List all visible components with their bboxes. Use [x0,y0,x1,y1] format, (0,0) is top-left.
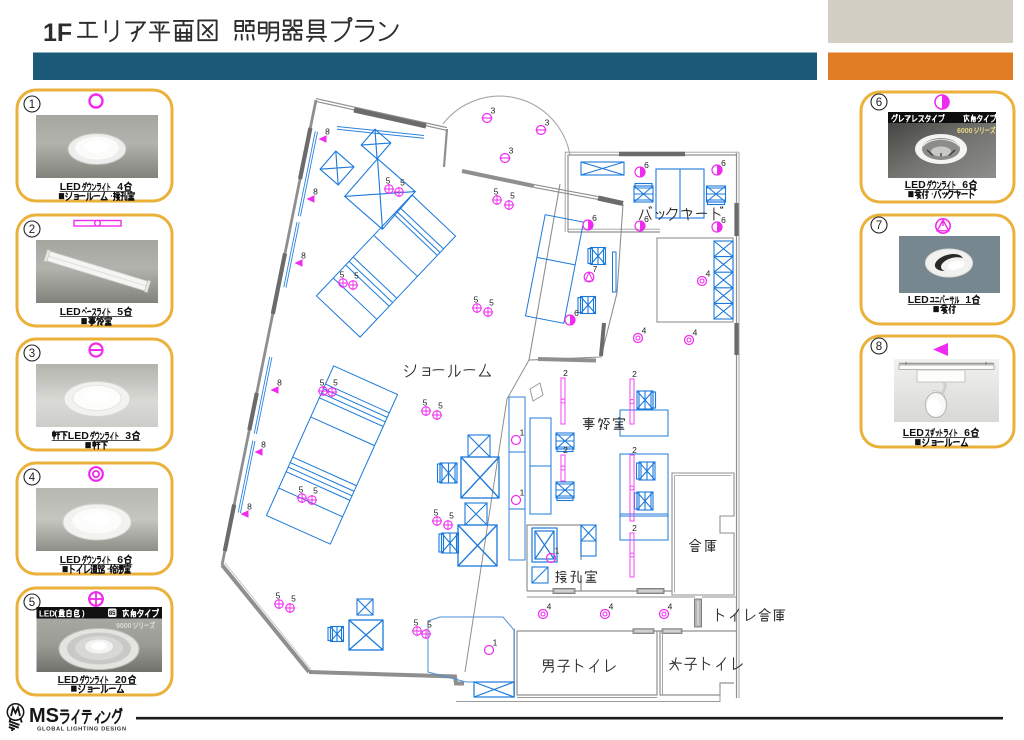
svg-text:8: 8 [313,187,318,197]
svg-text:5: 5 [449,511,454,521]
svg-text:3: 3 [491,106,496,116]
svg-text:): ) [82,609,85,618]
svg-text:6: 6 [592,213,597,223]
svg-text:8: 8 [876,341,882,353]
svg-text:6000: 6000 [957,128,973,135]
svg-text:4: 4 [642,326,647,336]
svg-text:8: 8 [247,502,252,512]
svg-text:5: 5 [489,298,494,308]
svg-text:1: 1 [520,428,525,438]
svg-text:5: 5 [354,271,359,281]
svg-text:2: 2 [632,523,637,533]
svg-text:5: 5 [320,378,325,388]
svg-text:5: 5 [299,485,304,495]
svg-text:6: 6 [644,160,649,170]
svg-text:4: 4 [547,602,552,612]
svg-text:1: 1 [555,546,560,556]
svg-text:5: 5 [438,401,443,411]
svg-text:3: 3 [29,348,35,360]
svg-text:1F: 1F [43,19,72,47]
svg-text:6: 6 [876,97,882,109]
svg-text:2: 2 [632,445,637,455]
svg-text:7: 7 [593,264,598,274]
svg-text:4: 4 [609,602,614,612]
svg-text:LED: LED [39,609,55,618]
svg-text:5: 5 [414,618,419,628]
svg-text:1: 1 [29,99,35,111]
svg-text:6: 6 [721,215,726,225]
svg-text:8: 8 [325,127,330,137]
svg-text:8: 8 [261,440,266,450]
svg-text:MS: MS [29,705,59,727]
svg-text:5: 5 [276,591,281,601]
svg-text:(: ( [55,609,58,618]
svg-text:5: 5 [494,187,499,197]
svg-text:2: 2 [563,368,568,378]
svg-text:5: 5 [434,508,439,518]
svg-text:5: 5 [474,295,479,305]
svg-text:8: 8 [301,251,306,261]
svg-text:4: 4 [29,472,36,484]
svg-text:5: 5 [423,398,428,408]
svg-text:1: 1 [520,488,525,498]
svg-text:5: 5 [29,597,35,609]
svg-text:2: 2 [563,445,568,455]
svg-text:4: 4 [706,269,711,279]
svg-text:5: 5 [340,270,345,280]
svg-text:3: 3 [509,146,514,156]
svg-text:6: 6 [644,214,649,224]
svg-text:1: 1 [493,638,498,648]
svg-text:5: 5 [313,486,318,496]
svg-text:9000: 9000 [116,623,132,630]
svg-text:2: 2 [29,224,35,236]
svg-text:6: 6 [721,158,726,168]
svg-text:5: 5 [510,191,515,201]
svg-text:85: 85 [109,611,116,617]
svg-text:2: 2 [632,369,637,379]
svg-text:GLOBAL LIGHTING DESIGN: GLOBAL LIGHTING DESIGN [37,727,127,733]
svg-text:6: 6 [574,308,579,318]
svg-text:8: 8 [277,378,282,388]
svg-text:5: 5 [400,178,405,188]
svg-text:4: 4 [668,602,673,612]
svg-text:7: 7 [876,220,882,232]
svg-text:5: 5 [291,594,296,604]
svg-text:5: 5 [333,378,338,388]
svg-text:5: 5 [427,620,432,630]
svg-text:5: 5 [386,176,391,186]
svg-text:4: 4 [693,328,698,338]
svg-text:3: 3 [545,118,550,128]
